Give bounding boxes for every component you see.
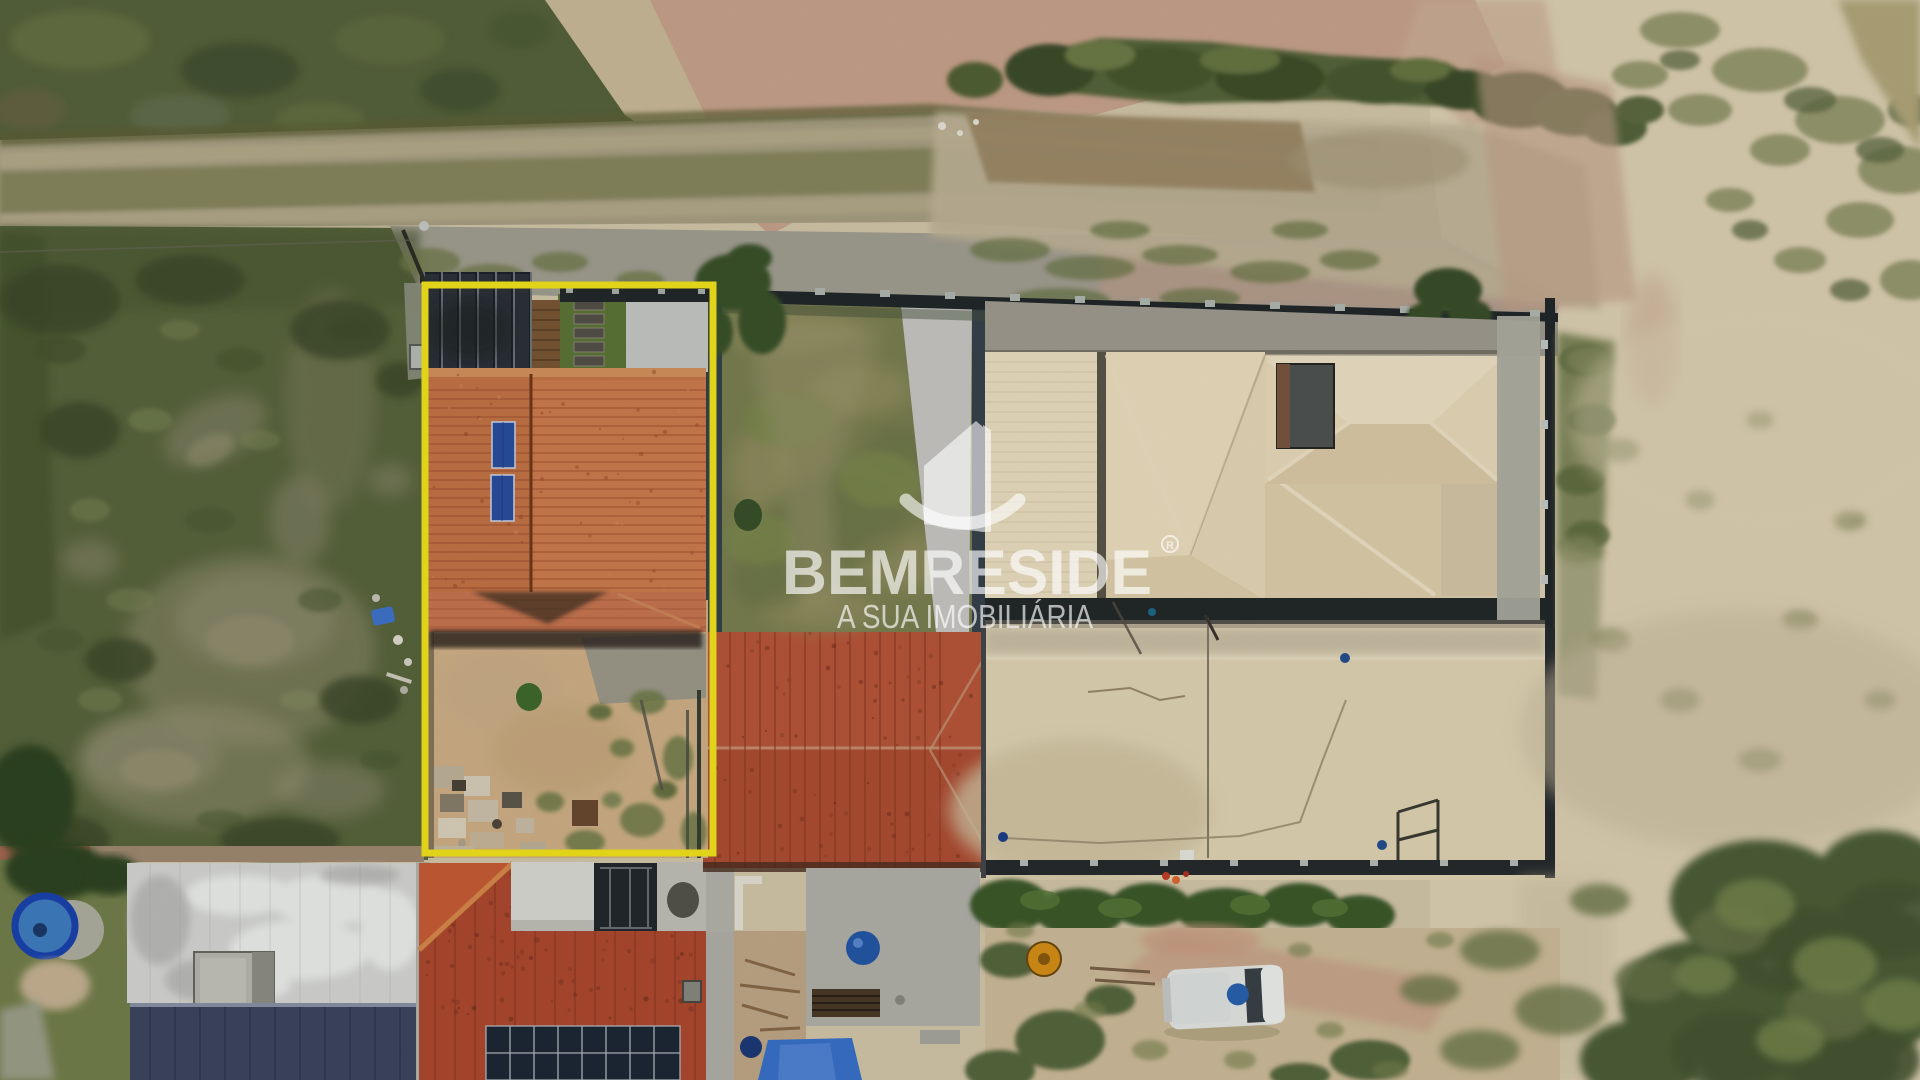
svg-text:R: R: [1166, 540, 1174, 552]
svg-text:A SUA IMOBILIÁRIA: A SUA IMOBILIÁRIA: [837, 598, 1093, 635]
